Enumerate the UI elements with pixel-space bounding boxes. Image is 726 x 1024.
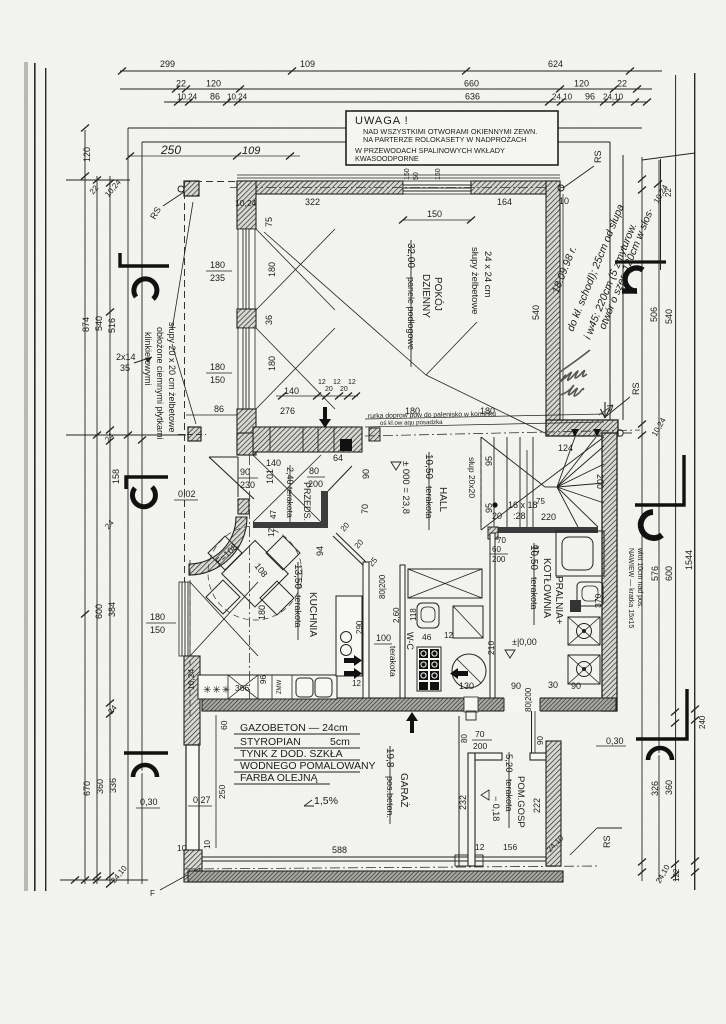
svg-text:180: 180 [210,260,225,270]
svg-text:80: 80 [309,466,319,476]
svg-text:20: 20 [325,386,333,393]
svg-text:156: 156 [503,842,517,852]
svg-text:90: 90 [571,681,581,691]
svg-text:12: 12 [352,679,361,688]
svg-text:terakota: terakota [529,577,539,610]
svg-text:słupy 20 x 20 cm żelbetowe: słupy 20 x 20 cm żelbetowe [167,322,177,433]
svg-text:670: 670 [82,781,92,796]
svg-text:oś kl.ow aqu posadzka: oś kl.ow aqu posadzka [380,419,443,427]
svg-text:235: 235 [210,273,225,283]
svg-text:0,30: 0,30 [606,736,624,746]
svg-text:12: 12 [318,379,326,386]
svg-text:96: 96 [585,92,595,102]
svg-text:290: 290 [355,620,364,634]
svg-text:158: 158 [111,469,121,484]
svg-text:506: 506 [649,307,659,322]
svg-text:118: 118 [409,608,418,621]
svg-text:GARAŻ: GARAŻ [398,773,411,807]
svg-text:250: 250 [160,143,181,157]
svg-text:ZMW: ZMW [277,679,283,694]
svg-text:KUCHNIA: KUCHNIA [307,592,318,637]
svg-text:588: 588 [332,845,347,855]
svg-text:180: 180 [150,612,165,622]
svg-text:W-C: W-C [405,632,415,650]
svg-text:322: 322 [305,197,320,207]
svg-text:10,24: 10,24 [186,668,196,690]
svg-text:10,24: 10,24 [235,198,257,208]
svg-text:130: 130 [459,681,474,691]
svg-text:12: 12 [267,528,276,537]
svg-text:326: 326 [650,781,660,796]
svg-text:101: 101 [265,469,275,484]
svg-text:22: 22 [617,79,627,89]
svg-text:576: 576 [650,566,660,581]
svg-text:10,24: 10,24 [177,93,198,102]
svg-text:232: 232 [458,795,468,810]
svg-text:636: 636 [465,92,480,102]
svg-text:50: 50 [413,172,420,180]
svg-text:słup 20x20: słup 20x20 [467,457,477,498]
svg-text:370: 370 [593,594,603,608]
svg-text:35: 35 [120,363,130,373]
svg-text:36: 36 [264,315,274,325]
svg-text:32,00: 32,00 [405,243,416,268]
svg-text:336: 336 [108,778,118,793]
svg-text:0,27: 0,27 [193,795,211,805]
svg-text:180: 180 [257,605,267,620]
svg-text:516: 516 [107,318,117,333]
svg-text:pos.beton.: pos.beton. [385,776,395,818]
svg-text:10: 10 [203,840,212,849]
svg-text:22: 22 [176,79,186,89]
svg-text:13,50: 13,50 [292,564,303,589]
svg-text:24,10: 24,10 [603,93,624,102]
svg-text:75: 75 [264,217,274,227]
svg-text:wlot 10cm nad pos.: wlot 10cm nad pos. [636,547,643,608]
svg-text:86: 86 [214,404,224,414]
svg-text:124: 124 [558,443,573,453]
svg-text:366: 366 [235,683,249,693]
svg-text:109: 109 [242,145,260,157]
svg-text:150: 150 [427,209,442,219]
svg-text:96: 96 [259,675,268,684]
svg-text:16 x 18: 16 x 18 [508,500,538,510]
svg-text:✳✳✳: ✳✳✳ [203,685,231,696]
svg-text:1,5%: 1,5% [314,795,338,807]
svg-text:RS: RS [631,382,641,395]
svg-text:120: 120 [206,79,221,89]
svg-text:UWAGA !: UWAGA ! [355,115,409,127]
svg-text:90: 90 [536,736,545,745]
svg-text:120: 120 [574,79,589,89]
svg-text:12: 12 [333,379,341,386]
svg-text:200: 200 [595,474,605,489]
svg-text:180: 180 [210,362,225,372]
svg-text:12: 12 [475,842,485,852]
svg-text:109: 109 [300,59,315,69]
svg-text:90: 90 [361,469,371,479]
svg-text:624: 624 [548,59,563,69]
svg-text:panele podłogowe: panele podłogowe [406,277,416,350]
svg-text:10,50: 10,50 [423,454,434,479]
svg-text:200: 200 [492,555,506,564]
svg-text:299: 299 [160,59,175,69]
svg-text:30: 30 [548,680,558,690]
svg-text:80|200: 80|200 [378,574,387,599]
svg-text:1544: 1544 [684,550,694,570]
svg-text:70: 70 [360,504,370,514]
svg-text:95: 95 [484,456,494,466]
svg-text:210: 210 [486,641,496,655]
svg-text:360: 360 [664,780,674,795]
svg-text:terakota: terakota [293,595,303,628]
svg-text:5cm: 5cm [330,736,350,748]
svg-text:276: 276 [280,406,295,416]
svg-text:150: 150 [150,625,165,635]
svg-text:200: 200 [473,741,487,751]
svg-text:70: 70 [475,729,485,739]
svg-text:540: 540 [664,309,674,324]
svg-text:PRALNIA+: PRALNIA+ [553,576,564,625]
svg-text:±|0,00: ±|0,00 [512,637,537,647]
svg-text:180: 180 [267,262,277,277]
svg-text:360: 360 [95,779,105,794]
svg-text:140: 140 [284,386,299,396]
svg-text:222: 222 [532,798,542,813]
svg-text:180: 180 [267,356,277,371]
svg-text:NAWIEW — kratka 15x15: NAWIEW — kratka 15x15 [627,548,634,628]
svg-text:180: 180 [480,406,495,416]
svg-text:220: 220 [541,512,556,522]
svg-text:HALL: HALL [437,487,448,512]
svg-text:− 0,18: − 0,18 [491,796,501,821]
svg-text:70: 70 [497,536,506,545]
svg-text:słupy żelbetowe: słupy żelbetowe [469,247,480,315]
svg-text:60: 60 [492,545,501,554]
svg-text:0,30: 0,30 [140,797,158,807]
svg-text:10: 10 [177,843,187,853]
svg-text:2,60: 2,60 [392,607,401,623]
svg-text:POM.GOSP: POM.GOSP [515,776,526,828]
svg-text:86: 86 [210,92,220,102]
svg-text:2x14: 2x14 [116,352,136,362]
svg-text:20: 20 [492,511,502,521]
svg-text:180: 180 [405,406,420,416]
svg-text:klinkierowymi: klinkierowymi [143,332,153,386]
svg-text:0,02: 0,02 [178,489,196,499]
svg-text:20: 20 [340,386,348,393]
svg-text:10: 10 [559,196,569,206]
svg-text:122: 122 [672,868,681,882]
svg-text:KOTŁOWNIA: KOTŁOWNIA [541,558,552,618]
svg-text:19,8: 19,8 [384,748,395,768]
svg-text:terakota: terakota [285,487,295,518]
svg-text:94: 94 [315,546,325,556]
svg-text:KWASOODPORNE: KWASOODPORNE [355,154,419,163]
svg-text:660: 660 [464,79,479,89]
svg-text:540: 540 [94,316,104,331]
svg-text:80|200: 80|200 [524,687,533,712]
svg-text:TYNK Z DOD. SZKŁA: TYNK Z DOD. SZKŁA [240,748,343,760]
svg-text:64: 64 [333,453,343,463]
svg-text:80: 80 [460,734,469,743]
svg-text:12: 12 [444,631,453,640]
svg-text:46: 46 [422,632,432,642]
svg-text:150: 150 [210,375,225,385]
svg-text:24 x 24 cm: 24 x 24 cm [482,251,493,298]
svg-text:terakota: terakota [424,486,434,519]
svg-text:250: 250 [217,785,227,799]
svg-text:140: 140 [266,458,281,468]
svg-text:10,24: 10,24 [227,93,248,102]
svg-text:384: 384 [107,602,117,617]
svg-text:600: 600 [664,566,674,581]
svg-text:164: 164 [497,197,512,207]
svg-text:100: 100 [376,633,391,643]
svg-text:RS: RS [593,150,603,163]
svg-text:F: F [150,889,155,898]
svg-text:200: 200 [308,479,323,489]
svg-text:WODNEGO POMALOWANY: WODNEGO POMALOWANY [240,760,376,772]
svg-text:600: 600 [94,604,104,619]
svg-text:GAZOBETON — 24cm: GAZOBETON — 24cm [240,722,348,734]
svg-text:120: 120 [82,147,92,162]
svg-text:230: 230 [240,480,255,490]
svg-text::28: :28 [513,511,526,521]
svg-text:75: 75 [536,497,545,506]
svg-text:FARBA OLEJNĄ: FARBA OLEJNĄ [240,772,319,784]
svg-text:90: 90 [240,467,250,477]
svg-text:terakota: terakota [388,646,398,677]
svg-text:DZIENNY: DZIENNY [420,274,431,318]
svg-text:874: 874 [81,317,91,332]
svg-text:12: 12 [348,379,356,386]
svg-text:terakota: terakota [504,779,514,812]
svg-text:± 000 = 23,8: ± 000 = 23,8 [400,461,411,514]
svg-text:STYROPIAN: STYROPIAN [240,736,301,748]
svg-text:47: 47 [269,510,278,519]
svg-text:RS: RS [602,835,612,848]
svg-text:POKÓJ: POKÓJ [432,277,445,311]
svg-text:obłożone ciemnymi płytkami: obłożone ciemnymi płytkami [155,327,165,440]
svg-text:90: 90 [511,681,521,691]
svg-text:540: 540 [531,305,541,320]
svg-text:5,20: 5,20 [503,754,514,773]
svg-text:24,10: 24,10 [552,93,573,102]
svg-text:60: 60 [219,720,229,730]
svg-text:240: 240 [698,715,707,729]
svg-text:10: 10 [532,545,541,554]
svg-text:NA PARTERZE ROLOKASETY W NADPR: NA PARTERZE ROLOKASETY W NADPROŻACH [363,135,526,144]
